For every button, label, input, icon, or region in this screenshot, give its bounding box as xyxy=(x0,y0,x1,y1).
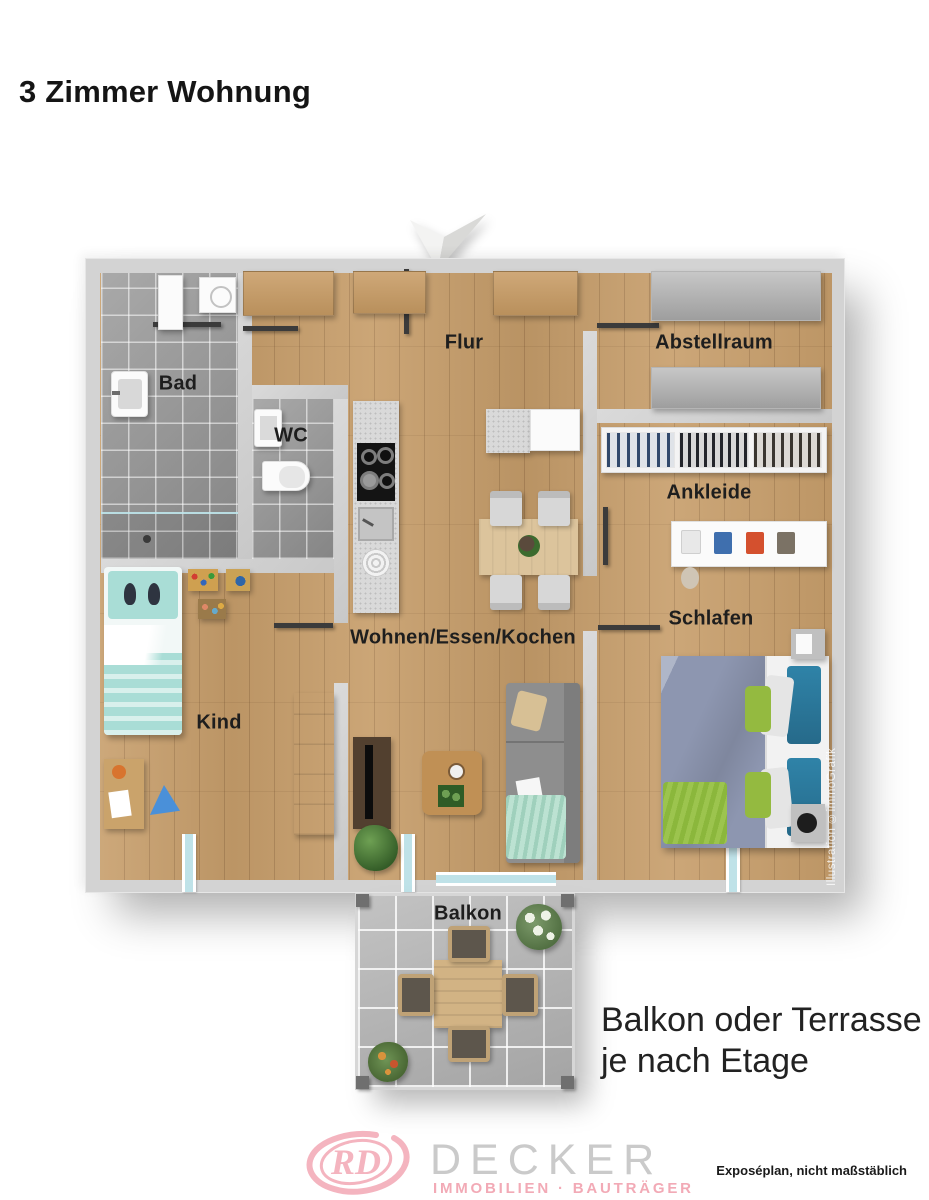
closet-section xyxy=(753,432,822,468)
room-label-wc: WC xyxy=(274,425,308,448)
cooktop xyxy=(357,443,395,501)
closet-section xyxy=(606,432,675,468)
floor-plant xyxy=(354,825,398,871)
wall-right-upper xyxy=(583,331,597,576)
hall-wardrobe xyxy=(493,271,578,316)
penguin xyxy=(124,583,136,605)
wall-kind-right xyxy=(334,683,348,880)
penguin xyxy=(148,583,160,605)
plate-stack xyxy=(362,549,390,577)
balcony-note: Balkon oder Terrasse je nach Etage xyxy=(601,1000,922,1082)
room-label-ankleide: Ankleide xyxy=(667,482,752,505)
kids-wardrobe xyxy=(294,693,334,835)
bath-radiator xyxy=(158,275,183,330)
sofa-pillow xyxy=(510,690,548,732)
disclaimer-text: Exposéplan, nicht maßstäblich xyxy=(716,1163,907,1178)
hall-wardrobe xyxy=(243,271,334,316)
window-balcony-door xyxy=(436,872,556,886)
nightstand xyxy=(791,804,825,842)
kitchen-sink xyxy=(358,507,394,541)
basket xyxy=(681,567,699,589)
closet-hanging-clothes xyxy=(601,427,827,473)
shower-glass xyxy=(101,512,238,514)
company-subtitle: IMMOBILIEN · BAUTRÄGER xyxy=(433,1180,694,1197)
table-plant xyxy=(518,535,540,557)
drawing-paper xyxy=(108,790,131,819)
room-label-balkon: Balkon xyxy=(434,903,502,926)
railing-post xyxy=(356,1076,369,1089)
room-label-bad: Bad xyxy=(159,373,197,396)
balcony-chair xyxy=(448,926,490,962)
storage-shelf xyxy=(651,367,821,409)
dining-chair xyxy=(490,575,522,610)
pillow-green xyxy=(745,772,771,818)
washing-machine xyxy=(199,277,236,313)
towels xyxy=(714,532,732,554)
illustration-watermark: Illustration ©immoGrafik xyxy=(826,596,838,886)
floor-plan: Bad WC Flur Abstellraum Ankleide Schlafe… xyxy=(85,258,845,893)
shower-area xyxy=(101,514,238,559)
wall-kitchen xyxy=(334,399,348,623)
flower-plant xyxy=(368,1042,408,1082)
room-label-abstellraum: Abstellraum xyxy=(655,332,773,355)
hall-wardrobe xyxy=(353,271,426,314)
company-logo-monogram: RD xyxy=(296,1122,418,1200)
dining-table xyxy=(479,519,578,575)
door-kind xyxy=(274,623,333,628)
balcony-chair xyxy=(502,974,538,1016)
toy-figure xyxy=(112,765,126,779)
railing-post xyxy=(356,894,369,907)
logo-monogram-text: RD xyxy=(330,1142,381,1182)
balcony-note-line2: je nach Etage xyxy=(601,1041,922,1082)
cup xyxy=(448,763,465,780)
blanket-green xyxy=(663,782,727,844)
door-abstellraum xyxy=(597,323,659,328)
toy-wood xyxy=(226,569,250,591)
lamp xyxy=(797,813,817,833)
balcony-note-line1: Balkon oder Terrasse xyxy=(601,1000,922,1041)
kids-duvet-fold xyxy=(104,625,182,665)
toy-box xyxy=(188,569,218,591)
railing-post xyxy=(561,894,574,907)
burner xyxy=(379,473,395,489)
page: 3 Zimmer Wohnung xyxy=(0,0,929,1200)
bad-washbasin xyxy=(111,371,148,417)
wall-right-lower xyxy=(583,631,597,880)
room-label-flur: Flur xyxy=(445,332,484,355)
tap xyxy=(362,518,374,527)
toilet xyxy=(262,461,310,491)
pillow-green xyxy=(745,686,771,732)
room-label-schlafen: Schlafen xyxy=(669,608,754,631)
railing-post xyxy=(561,1076,574,1089)
shoes xyxy=(681,530,701,554)
page-title: 3 Zimmer Wohnung xyxy=(19,74,311,110)
tv-screen xyxy=(365,745,373,819)
sideboard-white xyxy=(530,409,580,451)
toy-mosaic xyxy=(198,599,226,619)
kids-pillow xyxy=(108,571,178,619)
dining-chair xyxy=(490,491,522,526)
tv-lowboard xyxy=(353,737,391,829)
door-wc xyxy=(243,326,298,331)
toilet-seat xyxy=(279,466,305,488)
dressing-shelf xyxy=(671,521,827,567)
basin xyxy=(118,379,142,409)
closet-section xyxy=(679,432,748,468)
wall-wc-top xyxy=(252,385,348,399)
room-label-kind: Kind xyxy=(196,712,241,735)
company-name: DECKER xyxy=(430,1136,663,1185)
dining-chair xyxy=(538,575,570,610)
dining-chair xyxy=(538,491,570,526)
sofa xyxy=(506,683,580,863)
burner xyxy=(361,449,377,465)
window-kind xyxy=(182,834,196,892)
kids-duvet xyxy=(104,653,182,735)
balcony-chair xyxy=(448,1026,490,1062)
sideboard-stone xyxy=(486,409,530,453)
artwork xyxy=(746,532,764,554)
coffee-table xyxy=(422,751,482,815)
flower-plant xyxy=(516,904,562,950)
shower-drain xyxy=(143,535,151,543)
window-living xyxy=(401,834,415,892)
washing-machine-door xyxy=(210,286,232,308)
bag xyxy=(777,532,795,554)
balcony: Balkon xyxy=(355,893,575,1090)
notepad xyxy=(796,634,812,654)
storage-shelf xyxy=(651,271,821,321)
sofa-backrest xyxy=(564,683,580,863)
kids-bed xyxy=(104,567,182,735)
balcony-table xyxy=(434,960,502,1028)
table-plant-box xyxy=(438,785,464,807)
door-ankleide xyxy=(603,507,608,565)
balcony-chair xyxy=(398,974,434,1016)
pan xyxy=(360,471,379,490)
sofa-blanket xyxy=(506,795,566,859)
play-table xyxy=(104,759,144,829)
wall-abstellraum-ankleide xyxy=(597,409,832,423)
door-schlafen xyxy=(598,625,660,630)
nightstand xyxy=(791,629,825,659)
tap xyxy=(112,391,120,395)
burner xyxy=(377,447,394,464)
room-label-wohnen: Wohnen/Essen/Kochen xyxy=(350,627,576,650)
sofa-seam xyxy=(506,741,564,743)
